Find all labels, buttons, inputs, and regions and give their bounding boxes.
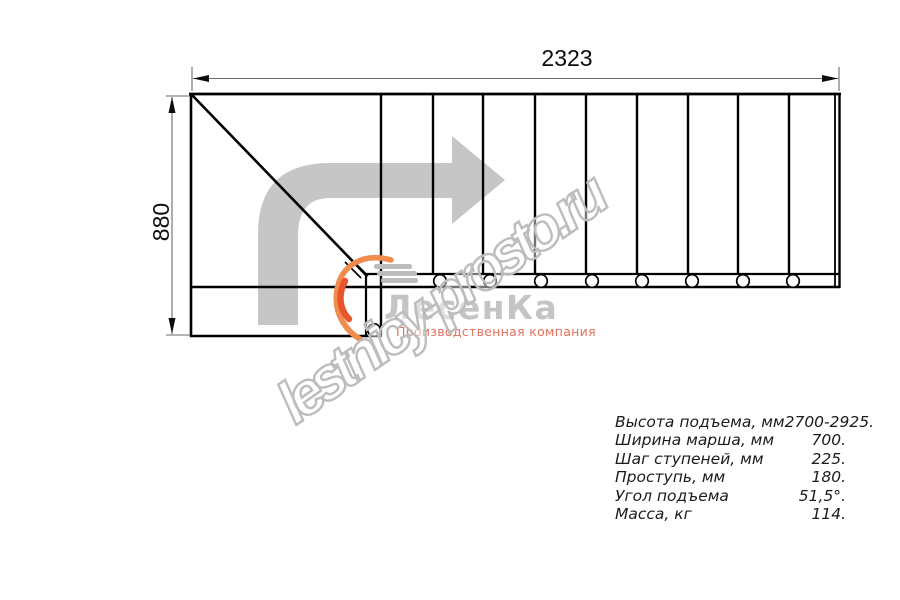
spec-row-height: Высота подъема, мм 2700-2925.	[615, 413, 846, 431]
stair-plan-canvas: 2323 880 ЛесенКа Производственная компан…	[0, 0, 900, 600]
spec-value: 51,5°.	[799, 487, 846, 505]
spec-value: 225.	[811, 450, 846, 468]
spec-label: Угол подъема	[615, 487, 729, 505]
left-dimension-label: 880	[148, 198, 174, 246]
spec-label: Проступь, мм	[615, 468, 725, 486]
spec-value: 114.	[811, 505, 846, 523]
spec-row-tread: Проступь, мм 180.	[615, 468, 846, 486]
spec-value: 700.	[811, 431, 846, 449]
spec-row-step-pitch: Шаг ступеней, мм 225.	[615, 450, 846, 468]
spec-value: 180.	[811, 468, 846, 486]
spec-row-mass: Масса, кг 114.	[615, 505, 846, 523]
spec-label: Шаг ступеней, мм	[615, 450, 764, 468]
spec-row-flight-width: Ширина марша, мм 700.	[615, 431, 846, 449]
top-dimension-label: 2323	[512, 45, 622, 72]
spec-value: 2700-2925.	[785, 413, 874, 431]
spec-label: Масса, кг	[615, 505, 692, 523]
spec-label: Высота подъема, мм	[615, 413, 785, 431]
spec-table: Высота подъема, мм 2700-2925. Ширина мар…	[615, 413, 846, 523]
spec-row-angle: Угол подъема 51,5°.	[615, 487, 846, 505]
spec-label: Ширина марша, мм	[615, 431, 774, 449]
